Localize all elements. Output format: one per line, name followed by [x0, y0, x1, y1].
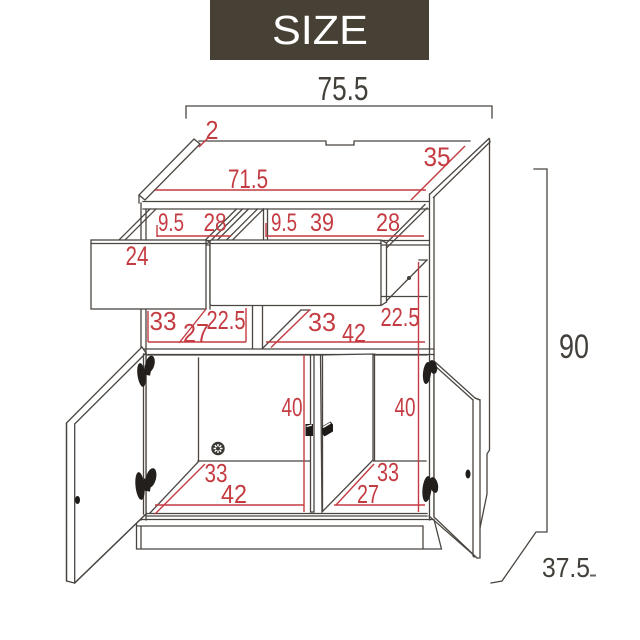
svg-text:42: 42	[342, 318, 366, 348]
svg-text:35: 35	[424, 142, 451, 172]
svg-text:9.5: 9.5	[271, 209, 297, 237]
svg-text:75.5: 75.5	[318, 70, 369, 107]
svg-text:SIZE: SIZE	[272, 7, 368, 53]
svg-text:28: 28	[204, 209, 227, 237]
svg-text:33: 33	[377, 457, 399, 487]
svg-text:9.5: 9.5	[158, 209, 184, 237]
svg-text:37.5: 37.5	[542, 552, 590, 583]
svg-text:22.5: 22.5	[381, 302, 420, 332]
svg-text:40: 40	[282, 392, 303, 422]
svg-text:33: 33	[150, 306, 177, 336]
svg-text:27: 27	[183, 318, 209, 348]
svg-text:39: 39	[310, 209, 334, 237]
svg-text:40: 40	[395, 392, 416, 422]
svg-text:27: 27	[357, 479, 379, 509]
svg-text:90: 90	[559, 328, 589, 366]
svg-text:24: 24	[126, 241, 149, 271]
svg-text:33: 33	[308, 307, 336, 337]
svg-text:2: 2	[206, 115, 219, 145]
svg-text:42: 42	[221, 479, 247, 509]
svg-text:28: 28	[376, 209, 400, 237]
svg-text:22.5: 22.5	[207, 305, 246, 335]
